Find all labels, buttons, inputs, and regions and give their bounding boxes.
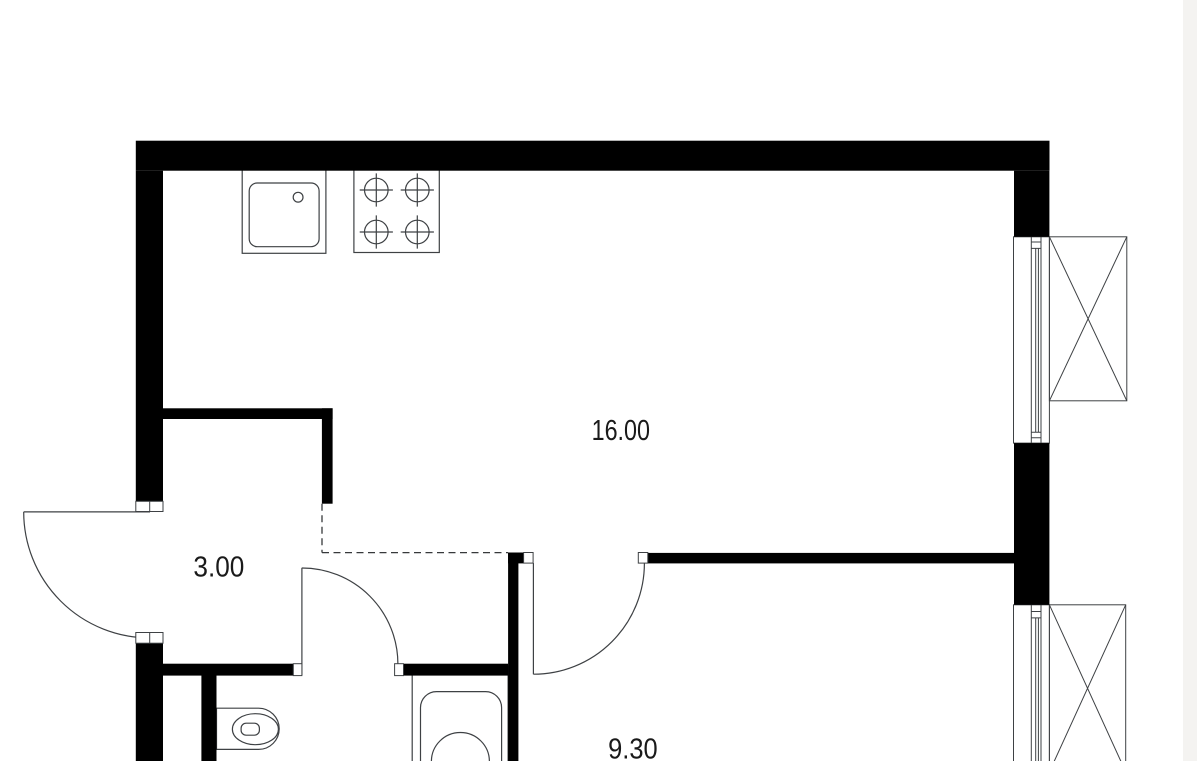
svg-text:16.00: 16.00	[592, 415, 650, 447]
svg-text:9.30: 9.30	[608, 734, 658, 761]
svg-text:3.00: 3.00	[193, 552, 244, 584]
